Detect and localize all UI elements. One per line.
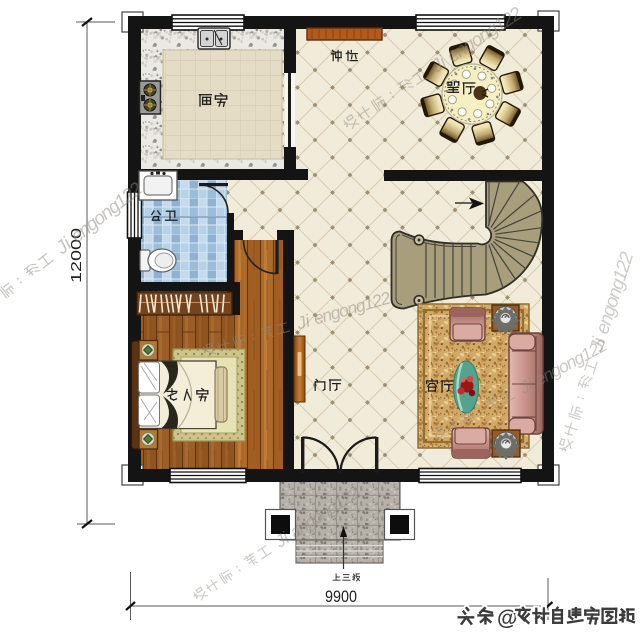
svg-text:9900: 9900 (325, 587, 357, 606)
